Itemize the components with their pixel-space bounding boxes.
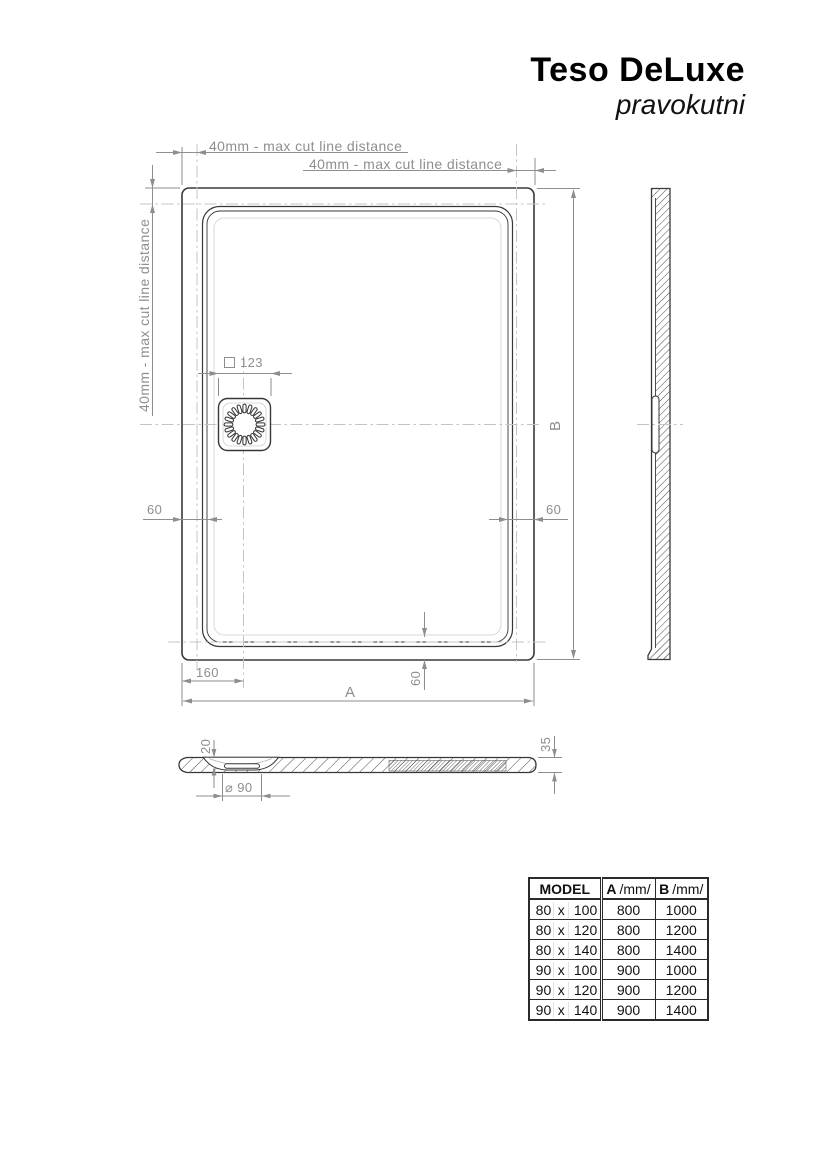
header-a: A/mm/ [601,878,655,899]
drain-grate [219,399,271,451]
square-symbol [224,357,235,368]
section-dimension-arrows [212,749,557,798]
width-a-label: A [345,684,355,701]
top-view [140,144,580,706]
table-header-row: MODEL A/mm/ B/mm/ [529,878,708,899]
product-title: Teso DeLuxe [530,52,745,88]
dimensions-table: MODEL A/mm/ B/mm/ 80x100 800 1000 80x120… [528,877,709,1021]
drain-size-label: 123 [224,355,263,370]
cut-line-label-left: 40mm - max cut line distance [136,219,152,412]
cut-line-label-top-left: 40mm - max cut line distance [209,138,402,154]
table-row: 80x100 800 1000 [529,899,708,920]
wall-bottom-label: 60 [408,671,423,686]
table-row: 80x120 800 1200 [529,920,708,940]
technical-drawing-page: Teso DeLuxe pravokutni 40mm - max cut li… [0,0,827,1169]
table-row: 90x140 900 1400 [529,1000,708,1021]
drain-diameter-label: ⌀ 90 [225,780,253,796]
height-b-label: B [547,421,564,431]
product-subtitle: pravokutni [530,89,745,121]
side-view [637,189,683,660]
drain-size-value: 123 [240,355,263,370]
cut-line-label-top-right: 40mm - max cut line distance [309,156,502,172]
header-model: MODEL [529,878,601,899]
drain-offset-label: 160 [196,665,219,680]
table-row: 90x120 900 1200 [529,980,708,1000]
anti-slip-band [389,761,506,772]
wall-right-label: 60 [546,502,561,517]
depth-20-label: 20 [198,739,213,754]
title-block: Teso DeLuxe pravokutni [530,52,745,121]
shower-tray-drawing [0,0,827,830]
table-row: 90x100 900 1000 [529,960,708,980]
table-row: 80x140 800 1400 [529,940,708,960]
thickness-35-label: 35 [538,737,553,752]
header-b: B/mm/ [655,878,708,899]
wall-left-label: 60 [147,502,162,517]
